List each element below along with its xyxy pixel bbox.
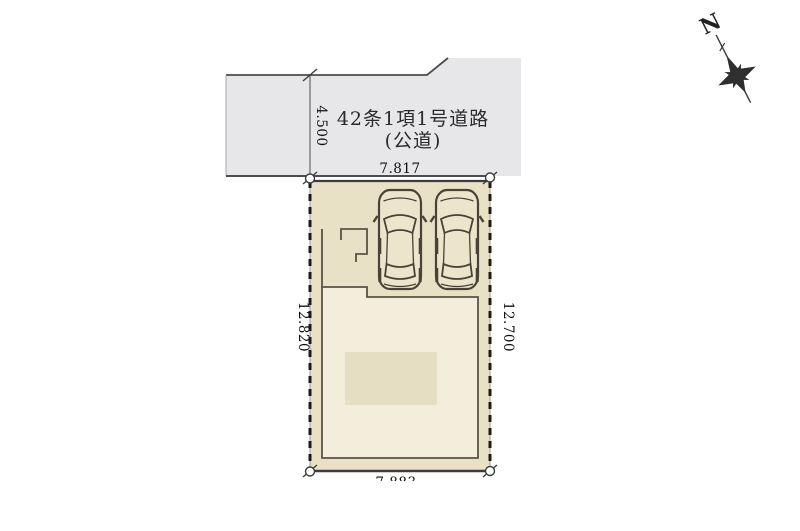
- site-plan-diagram: 42条1項1号道路 (公道) 4.500: [0, 0, 800, 481]
- road-label-line2: (公道): [385, 130, 442, 152]
- lot-top-dimension-label: 7.817: [379, 161, 420, 177]
- corner-marker-top-right: [486, 173, 495, 182]
- building-inner-shade: [345, 352, 437, 405]
- car-2: [431, 190, 484, 289]
- road-edge-top: [226, 58, 448, 75]
- lot-left-dimension-label: 12.820: [295, 302, 311, 352]
- car-1: [374, 190, 427, 289]
- corner-marker-bottom-right: [486, 467, 495, 476]
- road-label-line1: 42条1項1号道路: [337, 108, 489, 130]
- lot-right-dimension-label: 12.700: [500, 302, 516, 352]
- corner-marker-bottom-left: [306, 467, 315, 476]
- compass-break-mark: [718, 43, 727, 51]
- compass-north-label: N: [696, 8, 726, 40]
- corner-marker-top-left: [306, 174, 315, 183]
- compass-star-main: [708, 46, 764, 102]
- site-plan-page: 42条1項1号道路 (公道) 4.500: [0, 0, 800, 531]
- compass: N: [686, 3, 769, 112]
- lot-bottom-dimension-label: 7.883: [375, 475, 416, 481]
- road-width-dimension-label: 4.500: [313, 105, 329, 146]
